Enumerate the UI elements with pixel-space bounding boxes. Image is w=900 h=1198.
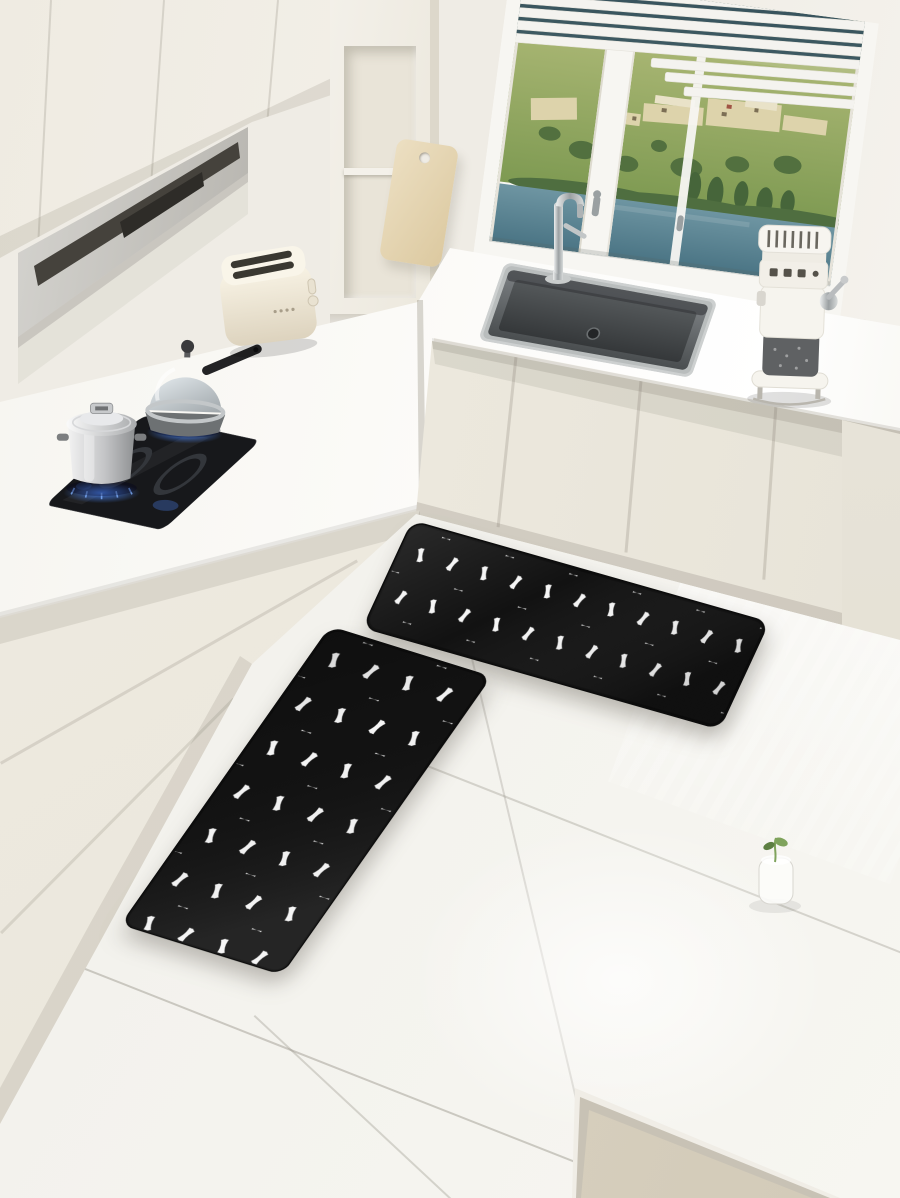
glass-vase-with-sprig [735,830,815,920]
red-roof-speck [726,104,731,109]
faucet-handle [563,222,588,239]
cabinet-seam [267,0,279,118]
faucet [520,182,630,302]
toaster [209,234,333,371]
plant-leaf [762,840,776,851]
coffee-machine [733,220,852,419]
toaster-lever [307,279,316,295]
stock-pot [52,392,152,509]
kitchen-photo [0,0,900,1198]
pot-handle [57,434,69,441]
cutting-board-hole [418,152,431,165]
coffee-machine-svg [733,220,852,414]
pot-handle [134,434,146,441]
stock-pot-svg [52,392,152,504]
toaster-svg [209,234,333,367]
lid-knob [181,340,194,353]
